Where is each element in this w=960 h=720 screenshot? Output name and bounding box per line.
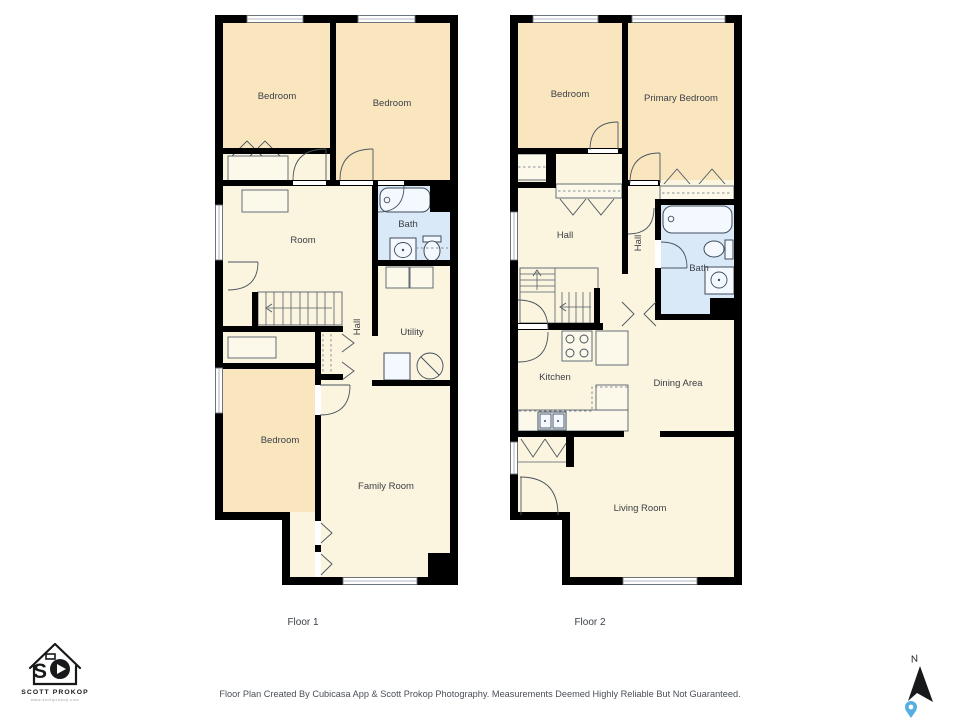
room-label-hall: Hall xyxy=(633,235,644,251)
north-label: N xyxy=(910,653,920,665)
bedroom-top-left-area xyxy=(223,23,330,148)
fireplace-block xyxy=(428,553,452,577)
kitchen-counter xyxy=(596,385,628,410)
logo-initial: S xyxy=(33,660,47,683)
kitchen-counter xyxy=(518,410,628,431)
furniture-box xyxy=(242,190,288,212)
location-pin-icon xyxy=(905,701,917,718)
floor1-caption: Floor 1 xyxy=(287,617,319,628)
north-arrow-icon xyxy=(908,666,933,702)
camera-top-icon xyxy=(46,654,55,659)
room-label-family-room: Family Room xyxy=(358,481,414,492)
room-label-bedroom: Bedroom xyxy=(551,89,590,100)
room-label-bath: Bath xyxy=(398,219,418,230)
room-label-dining-area: Dining Area xyxy=(653,378,703,389)
floor2-caption: Floor 2 xyxy=(574,617,606,628)
closet-box xyxy=(228,156,288,182)
bedroom-area xyxy=(518,23,622,148)
room-label-bath: Bath xyxy=(689,263,709,274)
floorplan-drawing: Bedroom Bedroom Room Bath Hall Utility B… xyxy=(0,0,960,720)
house-camera-icon: S xyxy=(30,644,80,684)
logo-website: www.scottprokop.com xyxy=(31,697,80,702)
kitchen-sink-icon xyxy=(538,412,566,430)
room-label-hall: Hall xyxy=(352,319,363,335)
toilet-icon xyxy=(725,240,733,259)
scott-prokop-logo: S SCOTT PROKOP www.scottprokop.com xyxy=(21,644,89,702)
room-label-utility: Utility xyxy=(400,327,423,338)
staircase xyxy=(258,292,342,325)
appliance-icon xyxy=(384,353,410,380)
room-label-primary-bedroom: Primary Bedroom xyxy=(644,93,718,104)
wall-chunk xyxy=(546,150,556,183)
room-label-room: Room xyxy=(290,235,315,246)
room-label-bedroom: Bedroom xyxy=(261,435,300,446)
shelf-box xyxy=(410,267,433,288)
closet-box xyxy=(517,154,547,180)
room-label-bedroom: Bedroom xyxy=(258,91,297,102)
staircase xyxy=(520,268,598,323)
shelf-box xyxy=(386,267,409,288)
wall-chunk xyxy=(710,298,734,318)
room-label-living-room: Living Room xyxy=(614,503,667,514)
stove-icon xyxy=(562,331,592,361)
wall-chunk xyxy=(430,186,452,212)
footer-disclaimer: Floor Plan Created By Cubicasa App & Sco… xyxy=(219,689,740,699)
closet-box xyxy=(228,337,276,358)
room-label-bedroom: Bedroom xyxy=(373,98,412,109)
logo-name: SCOTT PROKOP xyxy=(21,689,89,696)
room-label-kitchen: Kitchen xyxy=(539,372,571,383)
floorplan-page: Bedroom Bedroom Room Bath Hall Utility B… xyxy=(0,0,960,720)
counter-box xyxy=(596,331,628,365)
floor2-plan: Bedroom Primary Bedroom Hall Hall Bath K… xyxy=(510,15,742,628)
floor1-plan: Bedroom Bedroom Room Bath Hall Utility B… xyxy=(215,15,458,628)
room-label-hall: Hall xyxy=(557,230,573,241)
bathtub-icon xyxy=(380,188,430,212)
compass: N xyxy=(905,653,933,718)
